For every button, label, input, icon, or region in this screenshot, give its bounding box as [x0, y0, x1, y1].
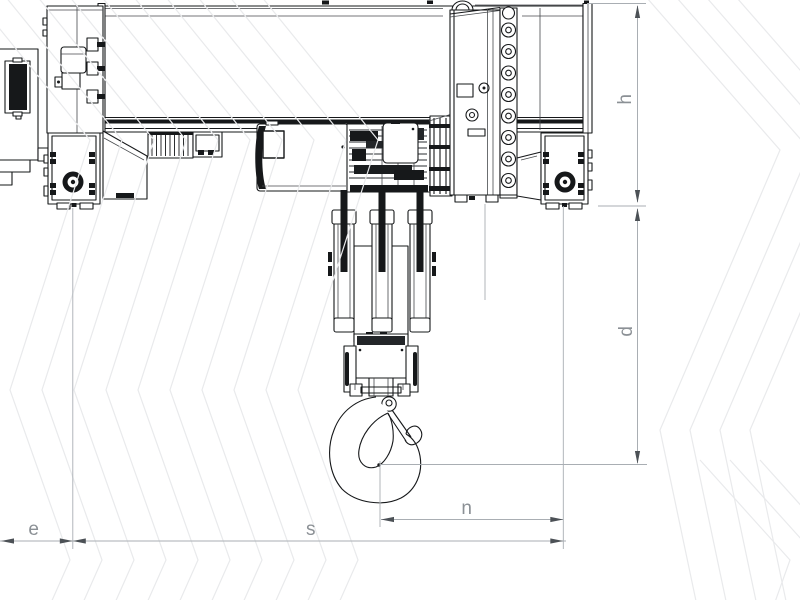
motor-junction-box — [193, 132, 222, 157]
dim-label-d: d — [616, 325, 637, 336]
hoist-dimension-drawing: h d n s e — [0, 0, 800, 600]
dim-label-s: s — [306, 519, 316, 540]
control-panel-display — [9, 64, 27, 110]
wheel-axle-cap-right — [555, 172, 576, 193]
right-wheel-block — [541, 133, 592, 209]
brake-box — [383, 120, 418, 163]
dim-label-e: e — [28, 519, 39, 540]
wheel-axle-cap-left — [63, 172, 84, 193]
girder — [98, 1, 592, 134]
girder-right-end-plate — [583, 4, 592, 134]
hook-block — [344, 332, 418, 396]
hoist-gearbox — [450, 7, 517, 202]
dim-label-n: n — [461, 498, 472, 519]
gear-connection-frame — [429, 114, 453, 196]
dim-label-h: h — [615, 93, 636, 104]
right-torsion-bracket — [517, 152, 541, 200]
bottom-block-sheaves — [328, 188, 436, 342]
gearbox-bolt-bosses — [502, 7, 516, 188]
hoist-gear-unit — [347, 114, 453, 196]
left-trolley-frame — [43, 6, 105, 133]
